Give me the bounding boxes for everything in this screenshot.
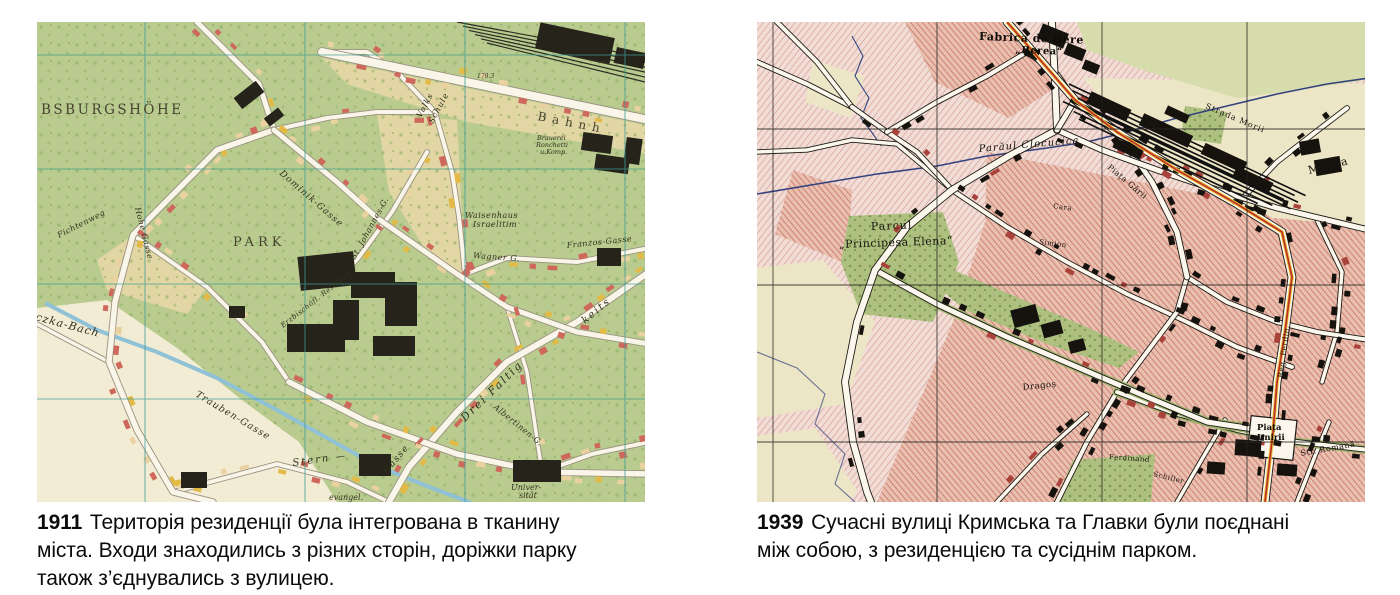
map-label: u.Komp. (540, 148, 567, 156)
map-1911-canvas: BSBURGSHÖHEPARKVolksSchuleWaisenhausIsra… (37, 22, 645, 502)
caption-text-1911: Територія резиденції була інтегрована в … (37, 511, 577, 590)
caption-text-1939: Сучасні вулиці Кримська та Главки були п… (757, 511, 1289, 562)
map-label: evangel. (329, 493, 363, 502)
map-label: Waisenhaus (465, 211, 518, 220)
map-label: 178.3 (477, 73, 494, 80)
page: { "page": {"background": "#ffffff"}, "pa… (0, 0, 1400, 595)
map-label: sität (519, 491, 538, 500)
map-label: BSBURGSHÖHE (41, 101, 184, 118)
panel-1911: BSBURGSHÖHEPARKVolksSchuleWaisenhausIsra… (37, 22, 645, 593)
map-label: Israelitim (472, 220, 517, 229)
map-label: Parcul (871, 219, 913, 233)
map-1939-canvas: Fabrica de Bere„Berea“Parăul ClocucicaPa… (757, 22, 1365, 502)
panel-1939: Fabrica de Bere„Berea“Parăul ClocucicaPa… (757, 22, 1365, 565)
map-1939: Fabrica de Bere„Berea“Parăul ClocucicaPa… (757, 22, 1365, 502)
caption-1939: 1939 Сучасні вулиці Кримська та Главки б… (757, 509, 1365, 565)
map-label: „Berea“ (1015, 45, 1063, 58)
map-1911: BSBURGSHÖHEPARKVolksSchuleWaisenhausIsra… (37, 22, 645, 502)
caption-year-1939: 1939 (757, 511, 803, 534)
caption-1911: 1911 Територія резиденції була інтегрова… (37, 509, 645, 593)
map-label: PARK (233, 235, 285, 250)
map-label: Piața (1257, 423, 1282, 433)
map-label: Unirii (1257, 433, 1286, 443)
caption-year-1911: 1911 (37, 511, 82, 534)
